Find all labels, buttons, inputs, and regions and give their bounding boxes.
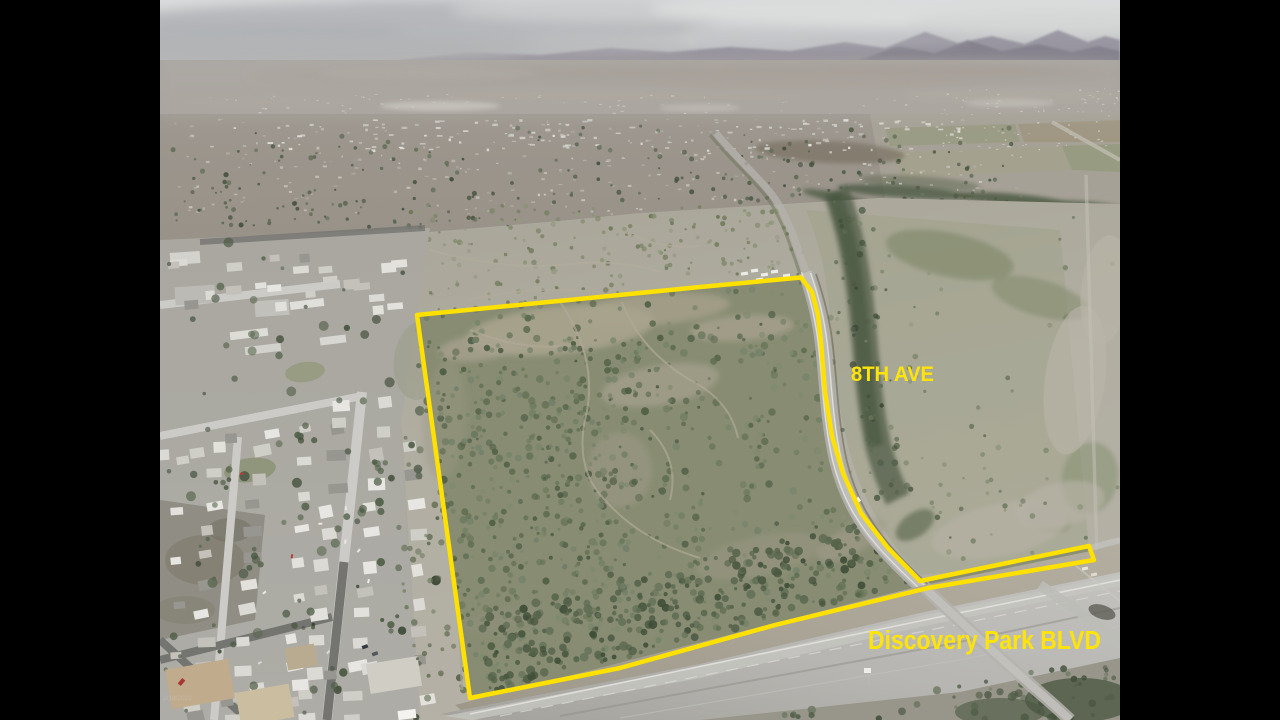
svg-text:2/18/2022: 2/18/2022 xyxy=(163,695,192,702)
svg-text:8TH AVE: 8TH AVE xyxy=(851,363,934,386)
svg-text:Discovery Park BLVD: Discovery Park BLVD xyxy=(868,627,1101,655)
